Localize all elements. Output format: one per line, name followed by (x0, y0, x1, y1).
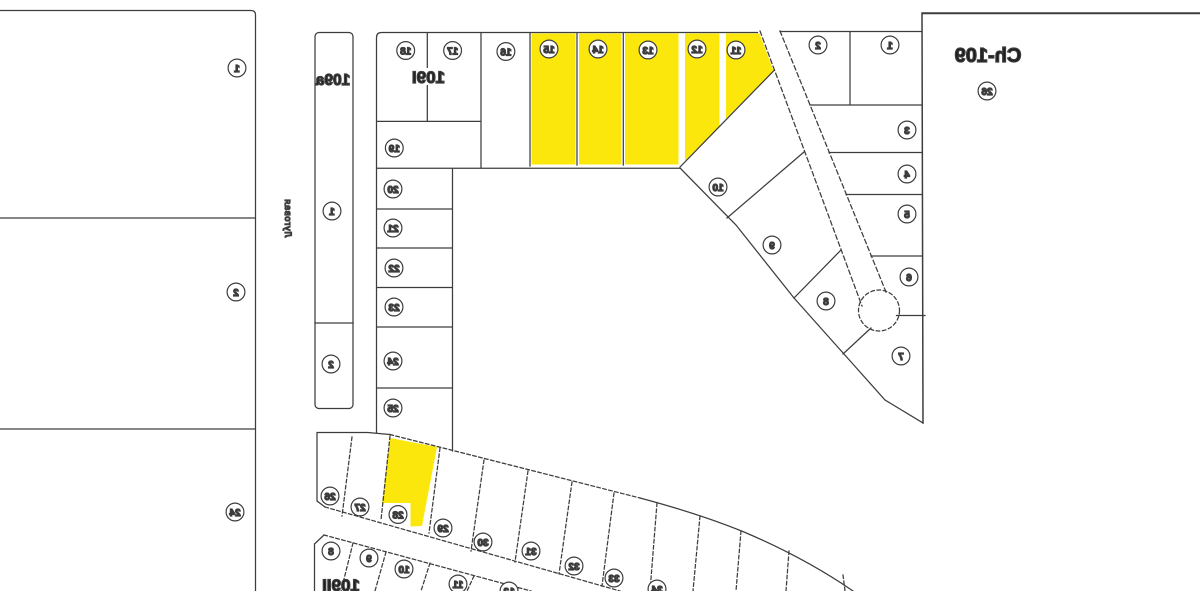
svg-text:3: 3 (904, 126, 910, 137)
svg-text:24: 24 (229, 508, 241, 519)
svg-text:22: 22 (388, 264, 400, 275)
svg-text:12: 12 (503, 587, 515, 591)
svg-text:17: 17 (447, 46, 459, 57)
svg-text:2: 2 (328, 360, 334, 371)
svg-text:2: 2 (815, 41, 821, 52)
svg-text:14: 14 (592, 45, 604, 56)
svg-text:6: 6 (906, 273, 912, 284)
svg-text:8: 8 (328, 547, 334, 558)
svg-text:10: 10 (398, 565, 410, 576)
svg-text:1: 1 (234, 64, 240, 75)
svg-text:27: 27 (354, 503, 366, 514)
svg-text:25: 25 (387, 404, 399, 415)
svg-text:26: 26 (324, 492, 336, 503)
svg-text:109II: 109II (322, 576, 360, 591)
svg-text:13: 13 (642, 46, 654, 57)
svg-text:Луговая: Луговая (283, 199, 293, 238)
svg-text:23: 23 (388, 303, 400, 314)
svg-text:24: 24 (387, 357, 399, 368)
svg-text:32: 32 (568, 562, 580, 573)
svg-text:21: 21 (387, 224, 399, 235)
svg-text:2: 2 (233, 288, 239, 299)
svg-text:29: 29 (437, 524, 449, 535)
svg-text:26: 26 (981, 87, 993, 98)
svg-text:19: 19 (388, 144, 400, 155)
svg-text:34: 34 (651, 585, 663, 591)
svg-text:11: 11 (730, 46, 741, 57)
svg-text:31: 31 (525, 547, 537, 558)
svg-text:1: 1 (329, 207, 335, 218)
svg-text:7: 7 (898, 352, 904, 363)
svg-text:10: 10 (712, 183, 724, 194)
svg-text:28: 28 (392, 510, 404, 521)
svg-text:109a: 109a (315, 72, 350, 89)
svg-text:18: 18 (400, 46, 412, 57)
svg-text:20: 20 (387, 185, 399, 196)
svg-text:Ch-109: Ch-109 (955, 45, 1022, 67)
svg-text:9: 9 (769, 241, 775, 252)
svg-text:30: 30 (477, 538, 489, 549)
svg-text:12: 12 (691, 45, 703, 56)
svg-text:9: 9 (366, 554, 372, 565)
svg-text:1: 1 (887, 41, 893, 52)
svg-text:8: 8 (823, 297, 829, 308)
svg-text:16: 16 (500, 47, 512, 58)
svg-text:5: 5 (904, 210, 910, 221)
svg-text:4: 4 (904, 170, 910, 181)
svg-text:11: 11 (452, 580, 463, 591)
svg-text:15: 15 (543, 45, 555, 56)
svg-text:109I: 109I (412, 68, 445, 87)
svg-text:33: 33 (608, 574, 620, 585)
